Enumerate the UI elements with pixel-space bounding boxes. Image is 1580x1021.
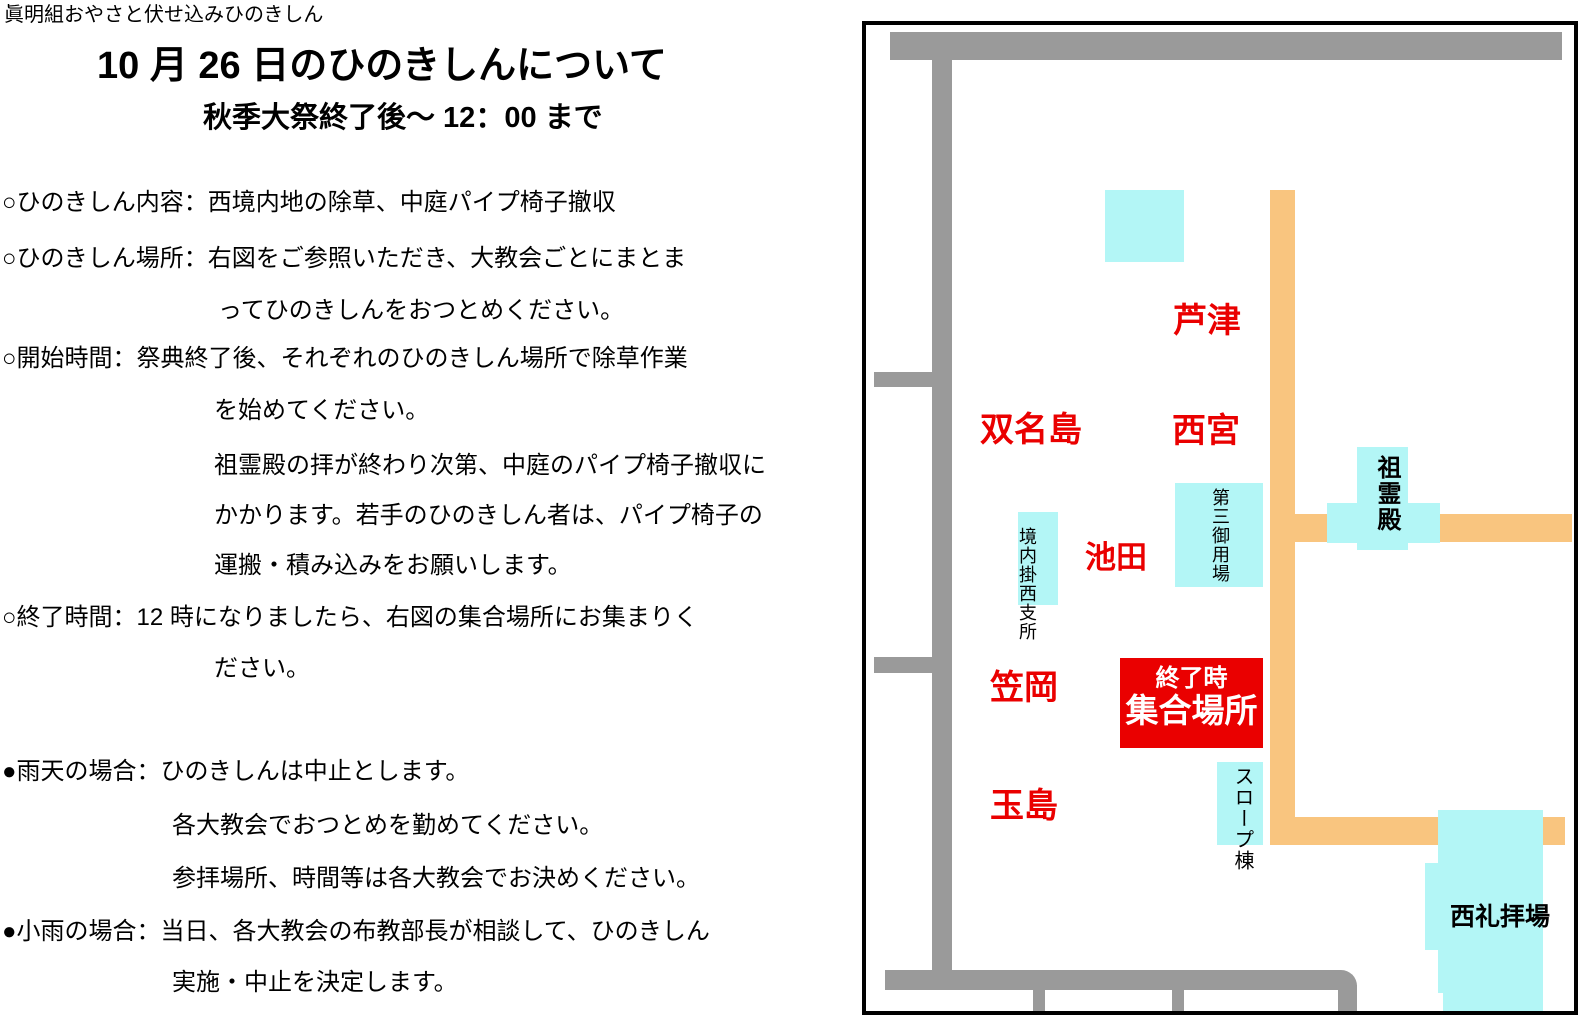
label-kenai-branch: 境内掛西支所 xyxy=(1016,527,1037,591)
doc-header: 眞明組おやさと伏せ込みひのきしん xyxy=(4,3,323,27)
page-title: 10 月 26 日のひのきしんについて xyxy=(97,44,667,88)
body-line: を始めてください。 xyxy=(214,397,429,425)
road-stub-upper xyxy=(874,372,932,387)
body-line: ○ひのきしん場所：右図をご参照いただき、大教会ごとにまとま xyxy=(2,245,686,273)
road-bottom-stub-1 xyxy=(1033,990,1045,1011)
meeting-point-box: 終了時 集合場所 xyxy=(1120,658,1263,748)
road-bottom-bend xyxy=(1338,985,1357,1011)
label-tamashima: 玉島 xyxy=(990,788,1058,824)
road-stub-lower xyxy=(874,657,932,673)
meeting-point-line2: 集合場所 xyxy=(1120,693,1263,729)
body-line: ○開始時間：祭典終了後、それぞれのひのきしん場所で除草作業 xyxy=(2,345,688,373)
campus-map: 境内掛西支所 第三御用場 祖霊殿 スロープ棟 西礼拝場 芦津 双名島 西宮 池田… xyxy=(862,21,1578,1015)
body-line: ださい。 xyxy=(214,655,310,683)
building-nishi-hall-extension xyxy=(1443,993,1543,1011)
building-unlabeled xyxy=(1105,190,1184,262)
road-left-vertical xyxy=(932,60,952,990)
label-soreiden: 祖霊殿 xyxy=(1369,455,1404,533)
body-line: ●雨天の場合：ひのきしんは中止とします。 xyxy=(2,758,469,786)
page-subtitle: 秋季大祭終了後〜 12：00 まで xyxy=(203,101,603,135)
body-line: 各大教会でおつとめを勤めてください。 xyxy=(172,812,603,840)
body-line: ○ひのきしん内容：西境内地の除草、中庭パイプ椅子撤収 xyxy=(2,189,616,217)
body-line: 祖霊殿の拝が終わり次第、中庭のパイプ椅子撤収に xyxy=(214,452,766,480)
body-line: 運搬・積み込みをお願いします。 xyxy=(214,552,572,580)
body-line: かかります。若手のひのきしん者は、パイプ椅子の xyxy=(214,502,763,530)
document-column: 眞明組おやさと伏せ込みひのきしん 10 月 26 日のひのきしんについて 秋季大… xyxy=(0,0,860,1021)
label-kasaoka: 笠岡 xyxy=(990,670,1058,706)
label-slope: スロープ棟 xyxy=(1228,766,1257,871)
body-line: ●小雨の場合：当日、各大教会の布教部長が相談して、ひのきしん xyxy=(2,918,710,946)
label-daisan-goyoba: 第三御用場 xyxy=(1207,488,1233,583)
label-funameshima: 双名島 xyxy=(980,412,1082,448)
road-bottom xyxy=(885,970,1357,990)
label-ashizu: 芦津 xyxy=(1173,303,1241,339)
body-line: ってひのきしんをおつとめください。 xyxy=(218,297,624,325)
road-bottom-stub-2 xyxy=(1172,990,1184,1011)
label-ikeda: 池田 xyxy=(1085,540,1147,576)
label-nishinomiya: 西宮 xyxy=(1172,413,1240,449)
flyer-page: 眞明組おやさと伏せ込みひのきしん 10 月 26 日のひのきしんについて 秋季大… xyxy=(0,0,1580,1021)
body-line: ○終了時間：12 時になりましたら、右図の集合場所にお集まりく xyxy=(2,604,698,632)
body-line: 参拝場所、時間等は各大教会でお決めください。 xyxy=(172,865,700,893)
building-nishi-hall-wing xyxy=(1425,863,1438,950)
meeting-point-line1: 終了時 xyxy=(1120,665,1263,693)
road-top xyxy=(890,32,1562,60)
body-line: 実施・中止を決定します。 xyxy=(172,969,458,997)
label-nishi-hall: 西礼拝場 xyxy=(1450,897,1550,933)
